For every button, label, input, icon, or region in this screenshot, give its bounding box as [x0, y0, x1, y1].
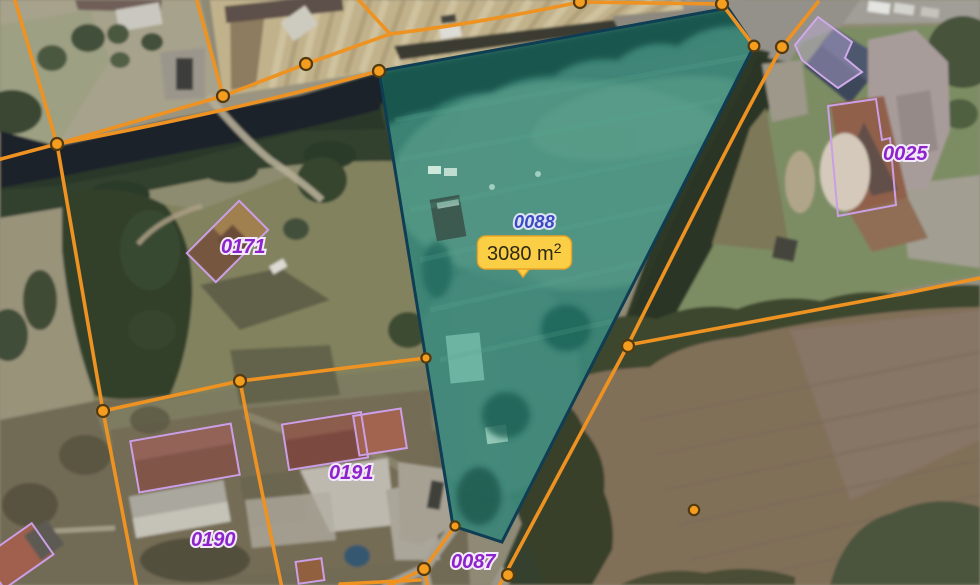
svg-text:0087: 0087	[451, 551, 496, 573]
svg-text:0025: 0025	[883, 143, 928, 165]
svg-text:0191: 0191	[329, 462, 374, 484]
svg-text:3080 m2: 3080 m2	[487, 240, 562, 265]
svg-text:0088: 0088	[514, 212, 555, 232]
svg-text:0171: 0171	[221, 236, 266, 258]
svg-text:0190: 0190	[191, 529, 236, 551]
